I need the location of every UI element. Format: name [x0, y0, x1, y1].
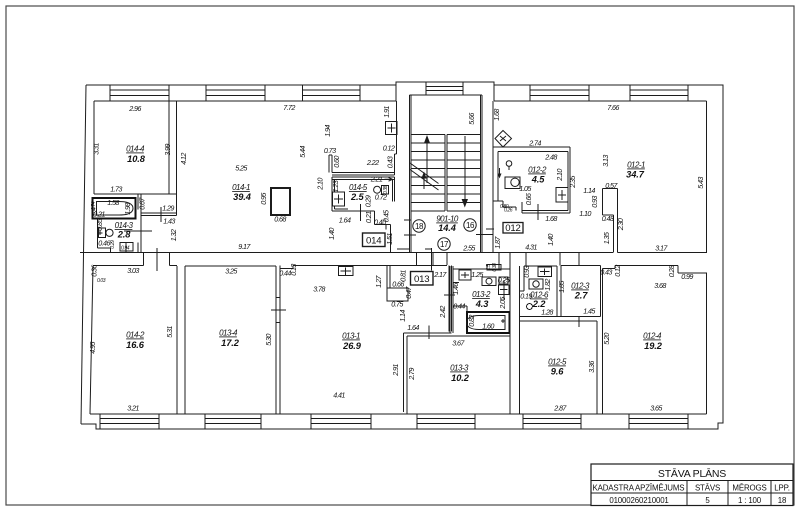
svg-text:1.64: 1.64 [339, 216, 351, 225]
svg-text:2.7: 2.7 [574, 291, 589, 301]
svg-text:5.25: 5.25 [235, 164, 248, 173]
svg-text:1.98: 1.98 [123, 203, 132, 215]
svg-text:0.68: 0.68 [274, 215, 286, 224]
svg-text:3.67: 3.67 [452, 339, 465, 348]
svg-text:0.60: 0.60 [332, 156, 341, 168]
svg-text:5.20: 5.20 [602, 333, 611, 345]
svg-text:3.31: 3.31 [92, 143, 101, 155]
svg-text:014: 014 [366, 235, 382, 246]
svg-text:1.28: 1.28 [541, 308, 553, 317]
svg-text:0.95: 0.95 [259, 192, 268, 205]
svg-text:012-4: 012-4 [643, 332, 662, 341]
svg-text:1.04: 1.04 [92, 207, 98, 216]
svg-text:18: 18 [778, 496, 787, 505]
svg-text:16.6: 16.6 [126, 340, 145, 350]
svg-text:3.68: 3.68 [654, 281, 666, 290]
svg-text:2.74: 2.74 [528, 139, 541, 148]
svg-text:1.73: 1.73 [110, 185, 122, 194]
svg-text:3.99: 3.99 [163, 144, 172, 156]
svg-text:013-4: 013-4 [219, 329, 238, 338]
svg-text:0.99: 0.99 [681, 272, 693, 281]
svg-text:3.21: 3.21 [127, 404, 139, 413]
svg-text:1.35: 1.35 [602, 231, 611, 244]
svg-text:5.43: 5.43 [696, 177, 705, 189]
svg-text:5.31: 5.31 [165, 326, 174, 338]
svg-text:0.21: 0.21 [364, 211, 373, 223]
svg-text:3.17: 3.17 [655, 244, 668, 253]
svg-text:1.43: 1.43 [163, 217, 175, 226]
svg-text:0.43: 0.43 [600, 268, 612, 277]
svg-text:1.23: 1.23 [331, 180, 340, 192]
svg-text:0.47: 0.47 [404, 286, 413, 299]
svg-text:39.4: 39.4 [233, 192, 252, 202]
svg-text:01000260210001: 01000260210001 [609, 496, 668, 505]
svg-text:3.78: 3.78 [313, 285, 325, 294]
svg-text:9.6: 9.6 [551, 367, 565, 377]
svg-text:1.87: 1.87 [493, 236, 502, 249]
svg-text:1.85: 1.85 [557, 280, 566, 293]
svg-text:2.48: 2.48 [544, 153, 557, 162]
svg-text:STĀVA PLĀNS: STĀVA PLĀNS [658, 468, 726, 480]
svg-text:1 : 100: 1 : 100 [738, 496, 762, 505]
svg-text:2.22: 2.22 [366, 158, 379, 167]
svg-text:013: 013 [414, 274, 429, 285]
svg-text:014-4: 014-4 [126, 145, 145, 154]
svg-text:012-2: 012-2 [528, 166, 547, 175]
svg-text:2.91: 2.91 [391, 364, 400, 377]
svg-text:2.21: 2.21 [370, 175, 383, 184]
svg-text:16: 16 [466, 221, 475, 230]
svg-text:2.35: 2.35 [568, 175, 577, 189]
svg-text:1.94: 1.94 [323, 125, 332, 137]
svg-text:0.28: 0.28 [667, 265, 676, 277]
svg-text:0.82: 0.82 [467, 315, 476, 327]
svg-text:1.40: 1.40 [327, 228, 336, 240]
svg-text:4.95: 4.95 [88, 341, 97, 354]
svg-text:012-5: 012-5 [548, 358, 567, 367]
svg-text:5.44: 5.44 [298, 146, 307, 158]
svg-text:2.42: 2.42 [438, 306, 447, 319]
svg-text:0.12: 0.12 [613, 265, 622, 277]
svg-text:7.72: 7.72 [283, 103, 295, 112]
svg-text:0.25: 0.25 [498, 276, 511, 285]
svg-text:013-2: 013-2 [472, 290, 491, 299]
svg-text:26.9: 26.9 [342, 341, 362, 351]
svg-text:0.93: 0.93 [522, 266, 531, 278]
svg-text:MĒROGS: MĒROGS [732, 484, 766, 493]
svg-text:2.30: 2.30 [616, 218, 625, 231]
svg-text:2.55: 2.55 [462, 244, 476, 253]
svg-text:4.31: 4.31 [525, 243, 537, 252]
svg-text:34.7: 34.7 [626, 170, 645, 180]
svg-text:0.66: 0.66 [524, 193, 533, 205]
svg-text:1.91: 1.91 [382, 106, 391, 118]
svg-text:2.8: 2.8 [117, 230, 132, 240]
svg-text:4.12: 4.12 [179, 153, 188, 165]
svg-text:0.94: 0.94 [121, 246, 130, 252]
svg-text:1.45: 1.45 [583, 307, 596, 316]
svg-text:14.4: 14.4 [438, 223, 457, 233]
svg-text:7.66: 7.66 [607, 103, 619, 112]
svg-text:0.19: 0.19 [520, 292, 532, 301]
svg-text:0.93: 0.93 [590, 196, 599, 208]
svg-text:0.85: 0.85 [95, 218, 104, 231]
svg-text:0.48: 0.48 [602, 214, 614, 223]
svg-text:0.67: 0.67 [138, 197, 147, 210]
svg-text:9.17: 9.17 [238, 242, 251, 251]
svg-text:012-1: 012-1 [627, 161, 645, 170]
svg-text:012: 012 [505, 223, 520, 234]
svg-text:1.64: 1.64 [407, 323, 419, 332]
svg-text:2.05: 2.05 [498, 296, 507, 310]
svg-text:17: 17 [440, 240, 449, 249]
svg-text:KADASTRA APZĪMĒJUMS: KADASTRA APZĪMĒJUMS [593, 484, 685, 493]
svg-text:0.26: 0.26 [504, 208, 513, 214]
svg-text:0.29: 0.29 [363, 195, 372, 207]
svg-text:5.30: 5.30 [264, 334, 273, 346]
svg-text:1.68: 1.68 [545, 214, 557, 223]
svg-text:1.05: 1.05 [519, 184, 532, 193]
svg-text:3.25: 3.25 [225, 267, 238, 276]
svg-text:3.65: 3.65 [650, 404, 663, 413]
svg-text:2.87: 2.87 [553, 404, 567, 413]
svg-text:1.51: 1.51 [385, 233, 394, 245]
svg-text:1.46: 1.46 [451, 283, 460, 295]
svg-text:0.81: 0.81 [399, 270, 408, 282]
svg-text:1.27: 1.27 [374, 275, 383, 288]
svg-text:2.79: 2.79 [407, 368, 416, 381]
svg-text:0.44: 0.44 [453, 302, 465, 311]
svg-text:2.10: 2.10 [316, 178, 325, 191]
svg-text:0.46: 0.46 [98, 239, 110, 248]
svg-text:1.58: 1.58 [107, 198, 119, 207]
svg-text:0.38: 0.38 [492, 263, 498, 272]
svg-text:0.43: 0.43 [385, 156, 394, 168]
svg-text:014-5: 014-5 [349, 183, 368, 192]
svg-text:17.2: 17.2 [221, 338, 240, 348]
svg-text:LPP.: LPP. [774, 484, 790, 493]
svg-text:0.38: 0.38 [383, 185, 389, 194]
svg-text:4.3: 4.3 [475, 299, 490, 309]
svg-text:014-2: 014-2 [126, 331, 145, 340]
svg-text:1.60: 1.60 [482, 322, 494, 331]
svg-text:0.29: 0.29 [110, 240, 116, 249]
svg-text:0.45: 0.45 [382, 209, 391, 222]
svg-text:1.14: 1.14 [583, 186, 595, 195]
svg-text:014-1: 014-1 [232, 183, 250, 192]
svg-text:3.03: 3.03 [127, 266, 139, 275]
svg-text:3.13: 3.13 [601, 155, 610, 167]
svg-text:012-3: 012-3 [571, 282, 590, 291]
svg-text:0.12: 0.12 [383, 144, 395, 153]
svg-text:013-1: 013-1 [342, 332, 360, 341]
svg-text:19.2: 19.2 [644, 341, 663, 351]
svg-text:STĀVS: STĀVS [695, 484, 720, 493]
svg-text:0.13: 0.13 [289, 264, 298, 276]
svg-text:1.82: 1.82 [543, 279, 552, 291]
svg-text:1.25: 1.25 [471, 270, 484, 279]
svg-text:2.96: 2.96 [128, 104, 141, 113]
svg-text:0.75: 0.75 [391, 300, 404, 309]
svg-text:0.36: 0.36 [90, 265, 99, 277]
svg-text:4.41: 4.41 [333, 391, 345, 400]
svg-text:2.5: 2.5 [350, 192, 365, 202]
svg-text:0.03: 0.03 [97, 278, 106, 284]
svg-text:18: 18 [415, 222, 424, 231]
svg-text:2.10: 2.10 [555, 169, 564, 182]
svg-text:1.40: 1.40 [546, 234, 555, 246]
svg-text:1.68: 1.68 [492, 109, 501, 121]
svg-text:10.2: 10.2 [451, 373, 470, 383]
svg-text:0.73: 0.73 [324, 146, 336, 155]
svg-text:5.66: 5.66 [467, 113, 476, 125]
svg-text:1.14: 1.14 [398, 310, 407, 322]
svg-text:1.10: 1.10 [579, 209, 591, 218]
svg-text:4.5: 4.5 [531, 175, 546, 185]
svg-text:10.8: 10.8 [127, 154, 146, 164]
svg-text:0.57: 0.57 [605, 181, 618, 190]
svg-text:2.17: 2.17 [433, 270, 447, 279]
svg-text:1.32: 1.32 [169, 229, 178, 241]
svg-text:013-3: 013-3 [450, 364, 469, 373]
svg-text:1.29: 1.29 [162, 204, 174, 213]
svg-text:3.36: 3.36 [587, 361, 596, 373]
